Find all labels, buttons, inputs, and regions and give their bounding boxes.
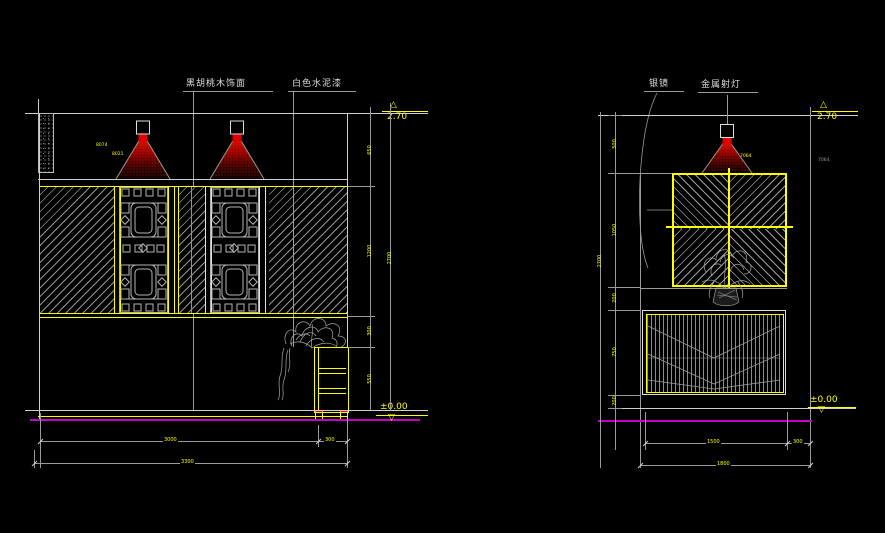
dim-value: 3000 — [163, 437, 178, 443]
dim-value: 1050 — [612, 218, 618, 242]
lamp-stem — [727, 95, 728, 125]
lamp-housing — [721, 125, 734, 138]
shelf-line — [640, 288, 787, 289]
lamp-core — [723, 137, 732, 145]
panel-ext-line — [640, 173, 672, 174]
side-table-shelf — [319, 388, 346, 389]
lamp-core — [139, 134, 148, 142]
callout-white-paint: 白色水泥漆 — [292, 79, 342, 89]
spotlight-right-elevation — [699, 124, 755, 174]
side-table-shelf — [319, 373, 346, 374]
dim-value: 500 — [612, 132, 618, 156]
elevation-value-top: 2.70 — [817, 112, 837, 122]
elevation-value-bottom: ±0.00 — [380, 402, 408, 412]
lamp-core — [233, 134, 242, 142]
cabinet-drapery-lines — [646, 314, 782, 391]
dim-value: 650 — [367, 138, 373, 162]
wall-right-edge-right — [810, 107, 811, 468]
side-table-shelf — [319, 393, 346, 394]
wall-section-stipple — [38, 113, 54, 173]
elevation-marker-line — [376, 415, 428, 416]
lattice-panel-1 — [119, 187, 168, 313]
dim-line-bottom-1 — [40, 441, 347, 442]
dim-value-total: 2700 — [387, 246, 393, 270]
dim-line-overall — [600, 112, 601, 468]
dim-value: 300 — [367, 319, 373, 343]
ceiling-ext-line — [38, 99, 39, 113]
callout-wood-underline — [183, 91, 273, 92]
floor-trim-line — [38, 416, 348, 417]
elevation-triangle-icon — [820, 101, 827, 110]
elevation-triangle-icon — [388, 414, 395, 423]
mirror-hatch-tl — [674, 175, 729, 229]
spotlight-right — [209, 120, 265, 180]
dim-value-total: 1800 — [716, 461, 731, 467]
lamp-note-1: 8074 — [96, 143, 107, 148]
dim-ext-line — [34, 450, 35, 468]
dim-value: 300 — [324, 437, 336, 443]
elevation-triangle-icon — [390, 101, 397, 110]
soffit-line — [38, 179, 347, 180]
dim-value-total: 3300 — [180, 459, 195, 465]
ceiling-line — [25, 113, 428, 114]
side-table-shelf — [319, 368, 346, 369]
floor-line — [25, 410, 428, 411]
lamp-housing — [231, 121, 244, 134]
centerline-upper — [193, 92, 194, 187]
side-table — [314, 347, 349, 413]
slatted-cabinet — [642, 310, 786, 395]
centerline-lower — [193, 313, 194, 410]
strip-centerline — [191, 187, 192, 313]
floor-magenta-line-right — [598, 420, 812, 422]
callout-mirror: 银镜 — [649, 79, 669, 89]
callout-paint-underline — [288, 91, 356, 92]
callout-spotlight-underline — [698, 92, 758, 93]
panel-frame-strip — [168, 187, 175, 313]
callout-spotlight: 金属射灯 — [701, 80, 741, 90]
dim-value: 1200 — [367, 239, 373, 263]
dim-ext-line — [318, 425, 319, 447]
mirror-hatch-tr — [729, 175, 785, 229]
dim-tick-line — [608, 115, 622, 116]
plant-right — [686, 232, 768, 314]
mirror-cross-horizontal — [666, 226, 793, 228]
center-hatch-strip — [178, 187, 207, 313]
wood-hatch-right — [269, 187, 347, 313]
wall-left-edge-right — [640, 173, 641, 468]
dim-value: 1500 — [706, 439, 721, 445]
lamp-note: 7064 — [740, 154, 751, 159]
lamp-note-2: 8021 — [112, 152, 123, 157]
gray-note: 7064 — [818, 158, 829, 163]
elevation-marker-line — [808, 407, 856, 408]
elevation-value-bottom: ±0.00 — [810, 395, 838, 405]
dim-value-total: 2700 — [597, 249, 603, 273]
wood-hatch-left — [40, 187, 114, 313]
dim-value: 750 — [612, 340, 618, 364]
dim-value: 200 — [612, 389, 618, 413]
lamp-housing — [137, 121, 150, 134]
dim-value: 200 — [612, 286, 618, 310]
dim-tick-line — [608, 173, 640, 174]
dim-tick-line — [608, 310, 640, 311]
cad-canvas: 黑胡桃木饰面 白色水泥漆 — [0, 0, 885, 533]
lattice-panel-2 — [210, 187, 259, 313]
side-table-edge — [318, 348, 319, 410]
panel-frame-strip — [259, 187, 266, 313]
callout-wood-veneer: 黑胡桃木饰面 — [186, 79, 246, 89]
floor-magenta-line — [30, 419, 420, 421]
spotlight-left — [115, 120, 171, 180]
dim-value: 550 — [367, 367, 373, 391]
dim-value: 300 — [792, 439, 804, 445]
elevation-triangle-icon — [818, 406, 825, 415]
